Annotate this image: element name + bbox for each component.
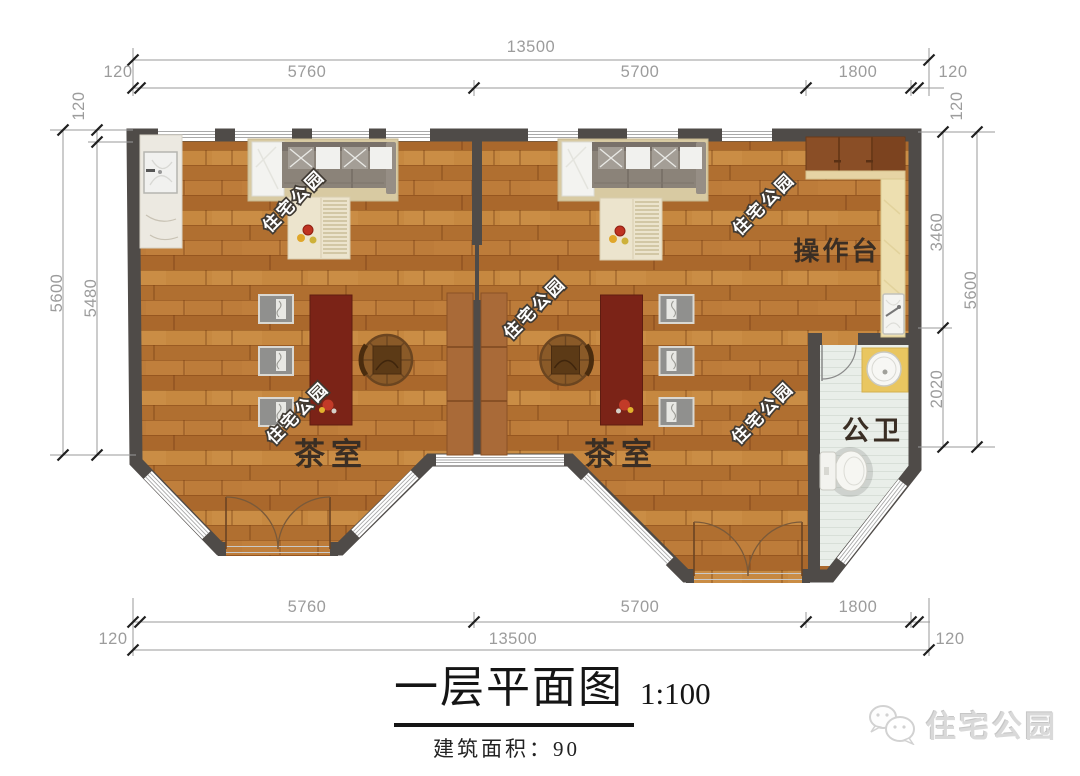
dim-left-120: 120 (70, 91, 88, 120)
corner-basin-left (140, 135, 182, 248)
toilet (820, 447, 873, 497)
room-label-counter: 操作台 (793, 236, 880, 266)
room-label-bathroom: 公卫 (842, 416, 904, 446)
dimensions-left: 5600 5480 120 (48, 91, 136, 460)
dim-top-1800: 1800 (839, 63, 878, 81)
dim-right-5600: 5600 (962, 271, 980, 310)
wechat-icon (866, 703, 918, 745)
dim-top-overall: 13500 (507, 38, 555, 56)
room-label-tea-right: 茶室 (584, 437, 658, 472)
dimensions-right: 3460 2020 5600 120 (918, 91, 995, 452)
coffee-table-right (600, 198, 662, 260)
sofa-left (248, 139, 398, 201)
sofa-right (558, 139, 708, 201)
title-block: 一层平面图 1:100 (394, 662, 711, 715)
dim-top-5760: 5760 (288, 63, 327, 81)
dim-bottom-1800: 1800 (839, 598, 878, 616)
dim-top-120-left: 120 (103, 63, 132, 81)
page-title: 一层平面图 (394, 662, 624, 715)
dim-left-5600: 5600 (48, 274, 66, 313)
center-window (436, 455, 564, 466)
floor-plan-page: 茶室 茶室 操作台 公卫 住宅公园 住宅公园 住宅公园 住宅公园 住宅公园 13… (0, 0, 1080, 776)
dim-left-5480: 5480 (82, 279, 100, 318)
dimensions-bottom: 5760 5700 1800 120 120 13500 (98, 598, 964, 656)
dim-right-3460: 3460 (928, 213, 946, 252)
building-area-label: 建筑面积：90 (433, 733, 580, 763)
room-label-tea-left: 茶室 (294, 437, 368, 472)
dim-bottom-5700: 5700 (621, 598, 660, 616)
dimensions-top: 13500 120 5760 5700 1800 120 (103, 38, 967, 96)
dim-bottom-overall: 13500 (489, 630, 537, 648)
dim-bottom-120-right: 120 (935, 630, 964, 648)
dim-top-120-right: 120 (938, 63, 967, 81)
title-underline (394, 723, 634, 727)
cabinets (806, 137, 905, 179)
dim-bottom-120-left: 120 (98, 630, 127, 648)
scale-label: 1:100 (640, 676, 711, 712)
dim-right-2020: 2020 (928, 370, 946, 409)
dim-bottom-5760: 5760 (288, 598, 327, 616)
dim-top-5700: 5700 (621, 63, 660, 81)
bathroom-sink (862, 348, 908, 392)
brand-logo: 住宅公园 (866, 702, 1058, 746)
counter-sink (883, 294, 904, 334)
floor-plan-svg: 茶室 茶室 操作台 公卫 住宅公园 住宅公园 住宅公园 住宅公园 住宅公园 13… (0, 0, 1080, 776)
dim-right-120: 120 (948, 91, 966, 120)
brand-logo-text: 住宅公园 (926, 702, 1058, 746)
